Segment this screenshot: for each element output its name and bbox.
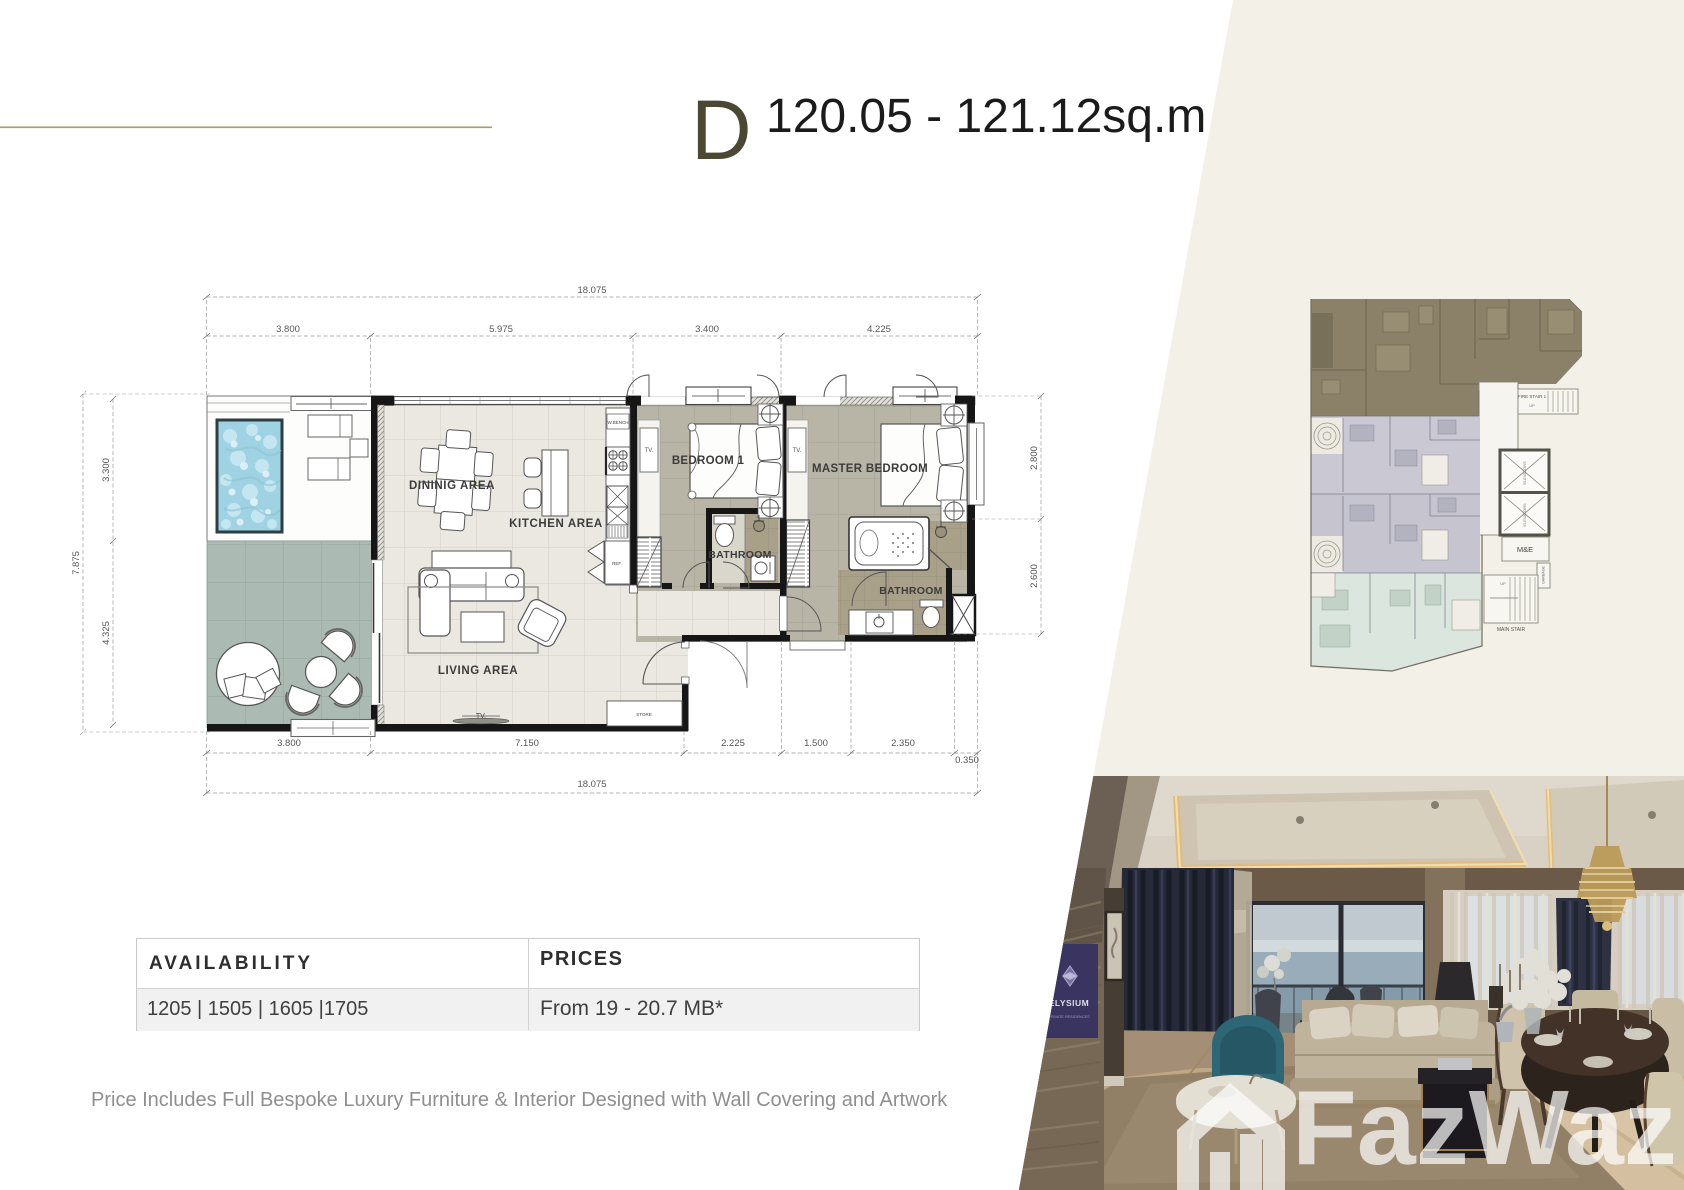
svg-text:MASTER BEDROOM: MASTER BEDROOM [812,463,928,475]
svg-text:3.800: 3.800 [276,324,300,335]
svg-text:5.975: 5.975 [489,324,513,335]
svg-text:3.300: 3.300 [101,458,112,482]
svg-text:2.600: 2.600 [1029,564,1040,588]
svg-text:FIRE STAIR 1: FIRE STAIR 1 [1518,394,1547,399]
svg-text:ELEVATORS: ELEVATORS [1522,461,1527,485]
svg-text:GARBAGE: GARBAGE [1542,566,1546,584]
svg-text:2.225: 2.225 [721,738,745,749]
svg-text:1.500: 1.500 [804,738,828,749]
svg-text:4.325: 4.325 [101,621,112,645]
svg-text:KITCHEN AREA: KITCHEN AREA [509,518,603,530]
svg-text:UP: UP [1500,581,1506,586]
svg-text:BATHROOM: BATHROOM [879,585,942,597]
svg-text:TV.: TV. [793,448,802,454]
svg-text:LIVING AREA: LIVING AREA [438,665,518,677]
svg-text:M&E: M&E [1517,545,1533,554]
svg-text:3.400: 3.400 [695,324,719,335]
svg-text:BATHROOM: BATHROOM [708,549,771,561]
svg-text:18.075: 18.075 [577,285,606,296]
svg-text:7.875: 7.875 [71,551,82,575]
svg-text:TV.: TV. [476,713,486,720]
svg-text:7.150: 7.150 [515,738,539,749]
svg-text:TV.: TV. [645,448,654,454]
svg-text:BEDROOM 1: BEDROOM 1 [672,455,745,467]
svg-text:STORE: STORE [636,712,651,717]
svg-text:0.350: 0.350 [955,755,979,766]
svg-text:18.075: 18.075 [577,779,606,790]
svg-text:2.350: 2.350 [891,738,915,749]
svg-text:4.225: 4.225 [867,324,891,335]
svg-text:3.800: 3.800 [277,738,301,749]
svg-text:W.BENCH: W.BENCH [607,420,628,425]
svg-text:UP: UP [1529,403,1535,408]
svg-text:2.800: 2.800 [1029,446,1040,470]
svg-text:MAIN STAIR: MAIN STAIR [1497,627,1526,633]
svg-text:REF.: REF. [612,561,622,566]
svg-text:ELEVATORS: ELEVATORS [1522,503,1527,527]
svg-text:DININIG AREA: DININIG AREA [409,480,495,492]
svg-text:FazWaz: FazWaz [1292,1069,1677,1187]
